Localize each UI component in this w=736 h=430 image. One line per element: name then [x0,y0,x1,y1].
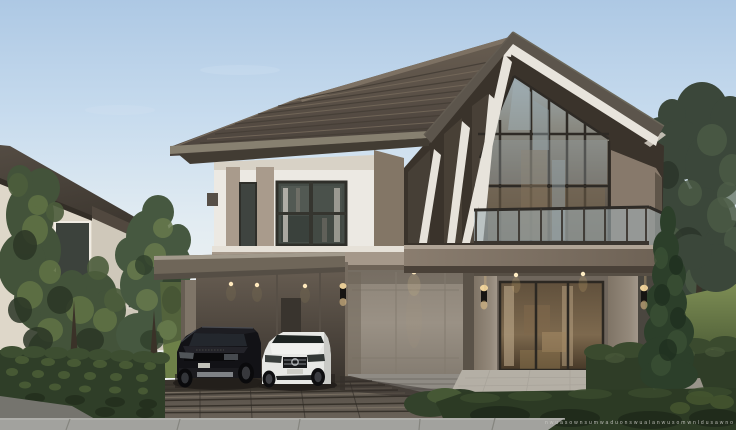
svg-text:n w u a s o w n s u m w a d u: n w u a s o w n s u m w a d u o n s w u … [545,420,733,426]
